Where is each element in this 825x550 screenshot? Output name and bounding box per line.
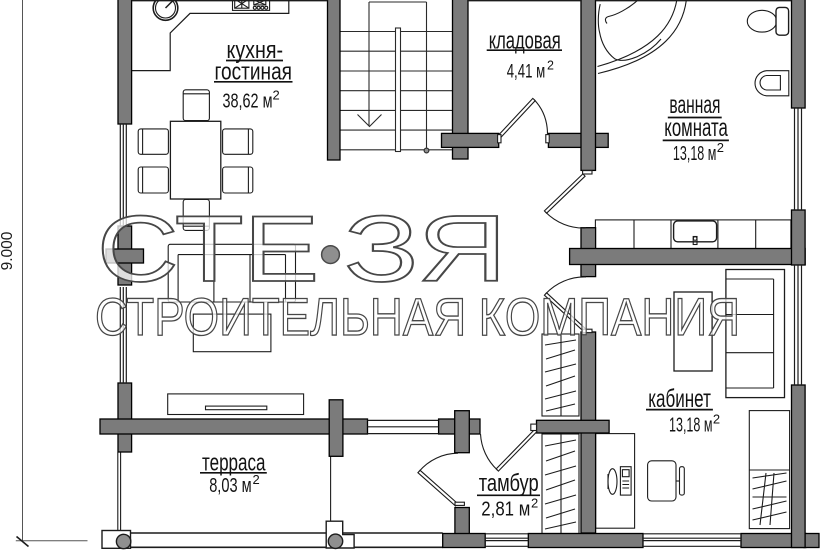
svg-text:2,81 м: 2,81 м <box>481 497 530 520</box>
svg-text:2: 2 <box>717 140 724 155</box>
svg-text:2: 2 <box>253 472 260 487</box>
svg-text:2: 2 <box>273 88 280 103</box>
svg-text:2: 2 <box>713 411 720 426</box>
svg-text:9.000: 9.000 <box>0 231 16 270</box>
svg-text:38,62 м: 38,62 м <box>223 90 273 113</box>
svg-text:13,18 м: 13,18 м <box>673 142 717 165</box>
svg-text:2: 2 <box>547 59 554 73</box>
svg-text:ЗЯ: ЗЯ <box>344 196 507 301</box>
svg-text:13,18 м: 13,18 м <box>669 413 713 436</box>
svg-text:СТРОИТЕЛЬНАЯ КОМПАНИЯ: СТРОИТЕЛЬНАЯ КОМПАНИЯ <box>95 288 740 347</box>
svg-text:2: 2 <box>531 495 538 510</box>
svg-text:8,03 м: 8,03 м <box>209 474 252 497</box>
svg-text:4,41 м: 4,41 м <box>507 62 546 83</box>
svg-text:СТЕ: СТЕ <box>97 196 319 301</box>
svg-text:тамбур: тамбур <box>479 470 539 497</box>
